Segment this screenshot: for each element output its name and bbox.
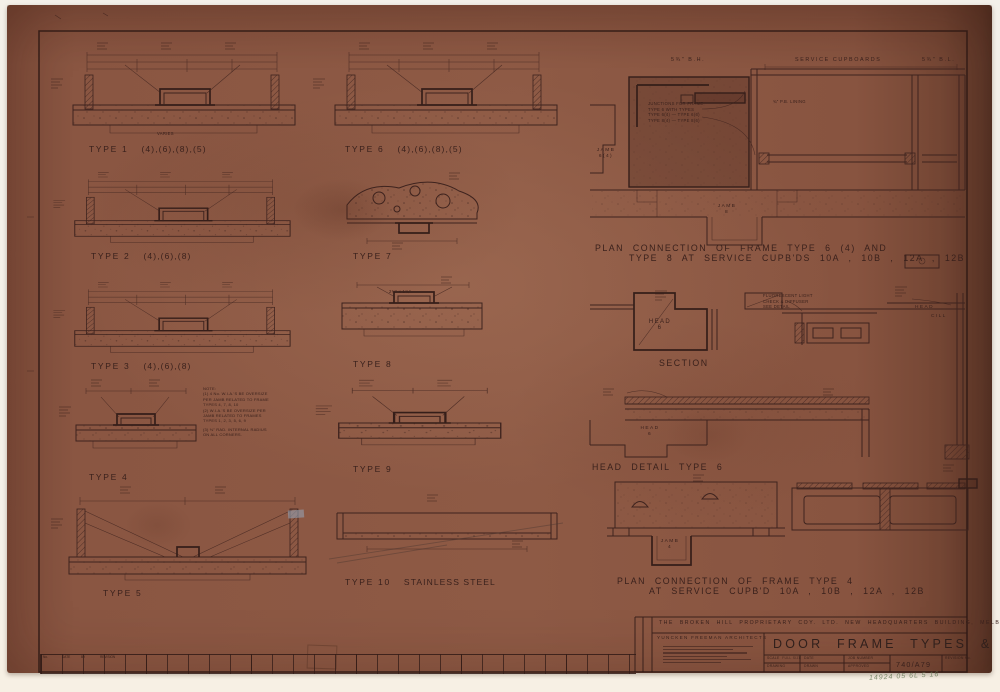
blue-tag bbox=[288, 509, 305, 518]
drawing-title: DOOR FRAME TYPES & DETAILS bbox=[773, 637, 1000, 651]
type-5-label: TYPE 5 bbox=[103, 588, 143, 598]
junction-note: JUNCTIONS FOR FRAME TYPE 6 WITH TYPES TY… bbox=[648, 101, 703, 123]
drawing-sheet: 5¾" B.H. SERVICE CUPBOARDS 5¾" B.L. TYPE… bbox=[7, 5, 992, 673]
type-8-label: TYPE 8 bbox=[353, 359, 393, 369]
type-2-label: TYPE 2(4),(6),(8) bbox=[91, 251, 192, 261]
pencil-mark-box bbox=[307, 644, 338, 669]
head-detail-caption: HEAD DETAIL TYPE 6 bbox=[592, 462, 723, 472]
section-caption: SECTION bbox=[659, 358, 709, 368]
consultants-lines bbox=[663, 644, 759, 665]
plan-top-caption-line2: TYPE 8 AT SERVICE CUPB'DS 10A , 10B , 12… bbox=[629, 253, 965, 263]
varies-label: VARIES bbox=[157, 131, 174, 137]
plan-bottom-caption-line2: AT SERVICE CUPB'D 10A , 10B , 12A , 12B bbox=[649, 586, 925, 596]
general-note-block: NOTE: (1) 4 No. W.I.A.'S BE OVERSIZE PER… bbox=[203, 386, 269, 438]
type-7-label: TYPE 7 bbox=[353, 251, 393, 261]
plan-bottom-caption-line1: PLAN CONNECTION OF FRAME TYPE 4 bbox=[617, 576, 854, 586]
job-number-field: JOB NUMBER bbox=[848, 656, 873, 660]
fluorescent-note: FLUORESCENT LIGHT CHECK & DIFFUSER SEE D… bbox=[763, 293, 813, 310]
plan-top-caption-line1: PLAN CONNECTION OF FRAME TYPE 6 (4) AND bbox=[595, 243, 887, 253]
dim-label-bh: 5¾" B.H. bbox=[671, 57, 705, 63]
drawing-field: DRAWING bbox=[767, 664, 785, 668]
head-label: HEAD bbox=[915, 305, 934, 311]
dim-2x1-label: 2¾" x 1¾" bbox=[389, 289, 411, 295]
approved-field: APPROVED bbox=[848, 664, 869, 668]
type-6-label: TYPE 6(4),(6),(8),(5) bbox=[345, 144, 463, 154]
revision-strip-headers: No.DATEBYREVISION bbox=[43, 655, 119, 660]
type-4-label: TYPE 4 bbox=[89, 472, 129, 482]
type-1-label: TYPE 1(4),(6),(8),(5) bbox=[89, 144, 207, 154]
head-6-detail-label: HEAD6 bbox=[635, 426, 665, 438]
drawing-number: 740/A79 bbox=[896, 660, 931, 669]
project-title: THE BROKEN HILL PROPRIETARY COY. LTD. NE… bbox=[659, 620, 1000, 626]
jamb-6-4-label: JAMB6(4) bbox=[591, 148, 621, 160]
type-9-label: TYPE 9 bbox=[353, 464, 393, 474]
scale-field: SCALE FULL SIZE bbox=[767, 656, 801, 660]
dim-label-bl: 5¾" B.L. bbox=[922, 57, 955, 63]
type-3-label: TYPE 3(4),(6),(8) bbox=[91, 361, 192, 371]
drawn-field: DRAWN bbox=[804, 664, 818, 668]
architects-name: YUNCKEN FREEMAN ARCHITECTS bbox=[657, 635, 767, 640]
service-cupboards-label: SERVICE CUPBOARDS bbox=[795, 57, 881, 63]
jamb-8-label: JAMB8 bbox=[712, 204, 742, 216]
head-6-section-label: HEAD6 bbox=[645, 319, 675, 331]
cill-label: CILL bbox=[931, 314, 947, 320]
date-field: DATE bbox=[804, 656, 814, 660]
scanned-drawing: 5¾" B.H. SERVICE CUPBOARDS 5¾" B.L. TYPE… bbox=[0, 0, 1000, 692]
revision-number-field: REVISION No. bbox=[945, 656, 971, 660]
type-10-label: TYPE 10STAINLESS STEEL bbox=[345, 577, 496, 587]
jamb-4-label: JAMB4 bbox=[655, 539, 685, 551]
pencil-handwriting: 14924 05 6L 5 16 bbox=[869, 671, 940, 682]
pb-lining-note: ¾" P.B. LINING bbox=[773, 99, 806, 105]
revision-strip bbox=[40, 654, 636, 674]
